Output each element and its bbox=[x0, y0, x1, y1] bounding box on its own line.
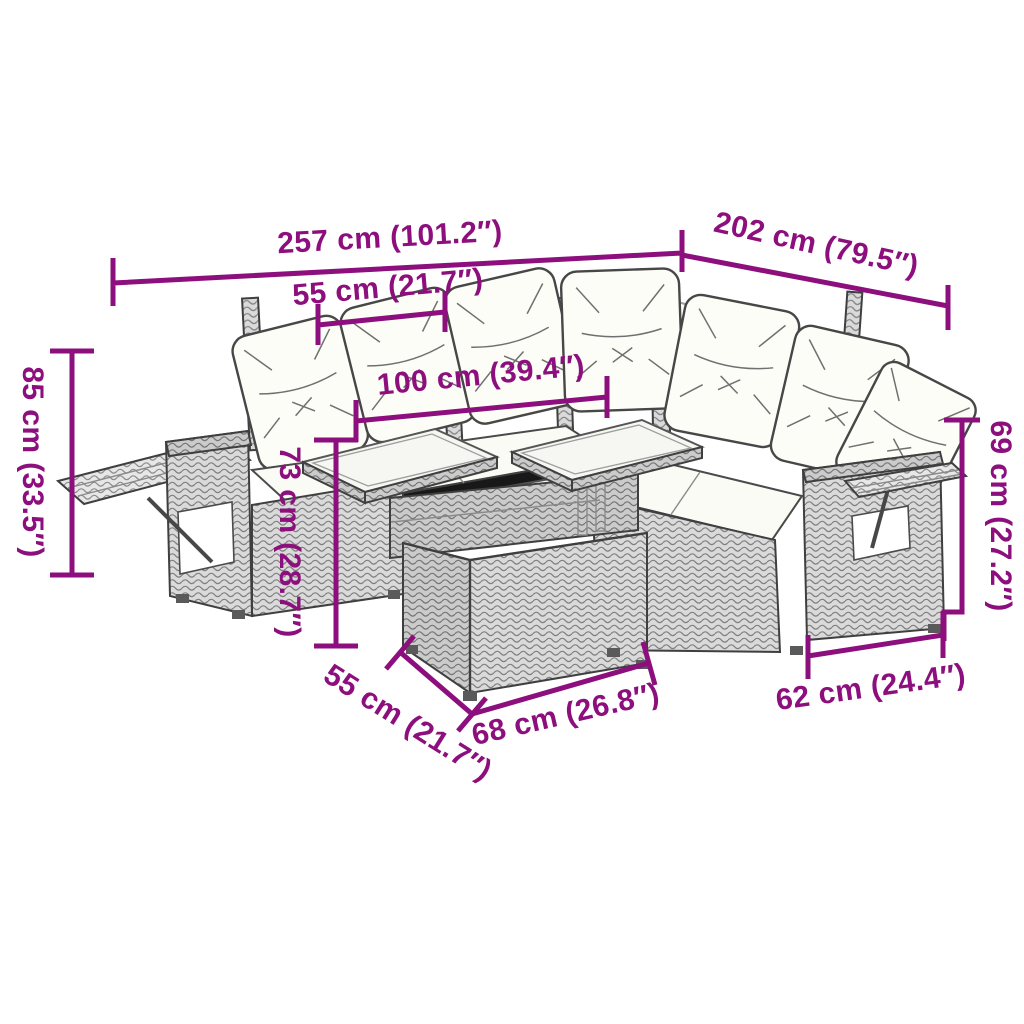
dimension-label-total-width: 257 cm (101.2″) bbox=[276, 215, 503, 261]
product-dimension-diagram: 257 cm (101.2″) 202 cm (79.5″) 55 cm (21… bbox=[0, 0, 1024, 1024]
back-cushion bbox=[561, 268, 684, 412]
dimension-label-back-height: 85 cm (33.5″) bbox=[16, 366, 49, 557]
dimension-label-table-height: 73 cm (28.7″) bbox=[273, 446, 306, 637]
diagram-canvas: 257 cm (101.2″) 202 cm (79.5″) 55 cm (21… bbox=[0, 0, 1024, 1024]
dimension-label-total-depth: 202 cm (79.5″) bbox=[711, 206, 922, 283]
furniture-illustration bbox=[58, 265, 980, 701]
dimension-back-height: 85 cm (33.5″) bbox=[16, 351, 94, 575]
table-lower-box bbox=[403, 533, 647, 693]
dimension-label-right-seat-width: 62 cm (24.4″) bbox=[774, 658, 968, 717]
dimension-label-right-height: 69 cm (27.2″) bbox=[984, 420, 1017, 611]
